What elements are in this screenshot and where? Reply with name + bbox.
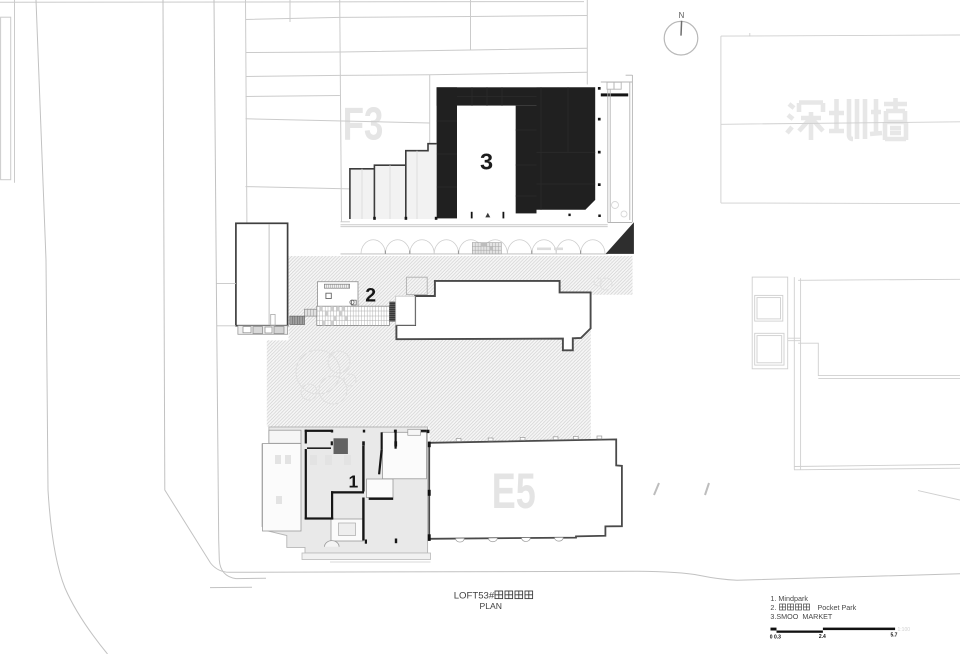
svg-text:3.SMOO MARKET: 3.SMOO MARKET — [770, 612, 833, 621]
svg-text:1:100: 1:100 — [898, 627, 911, 633]
svg-text:1: 1 — [349, 472, 359, 492]
svg-text:2: 2 — [365, 285, 376, 307]
svg-text:0 0.3: 0 0.3 — [770, 634, 781, 640]
svg-text:5.7: 5.7 — [891, 633, 898, 639]
svg-text:LOFT53#: LOFT53# — [454, 591, 495, 602]
svg-text:2.4: 2.4 — [819, 634, 826, 640]
svg-text:2.: 2. — [770, 603, 776, 612]
svg-text:Pocket Park: Pocket Park — [818, 603, 857, 612]
svg-text:F3: F3 — [343, 98, 384, 150]
svg-text:PLAN: PLAN — [480, 601, 502, 611]
svg-text:E5: E5 — [492, 463, 536, 519]
svg-text:3: 3 — [480, 148, 493, 174]
svg-text:N: N — [679, 11, 685, 20]
svg-text:1. Mindpark: 1. Mindpark — [770, 594, 808, 603]
